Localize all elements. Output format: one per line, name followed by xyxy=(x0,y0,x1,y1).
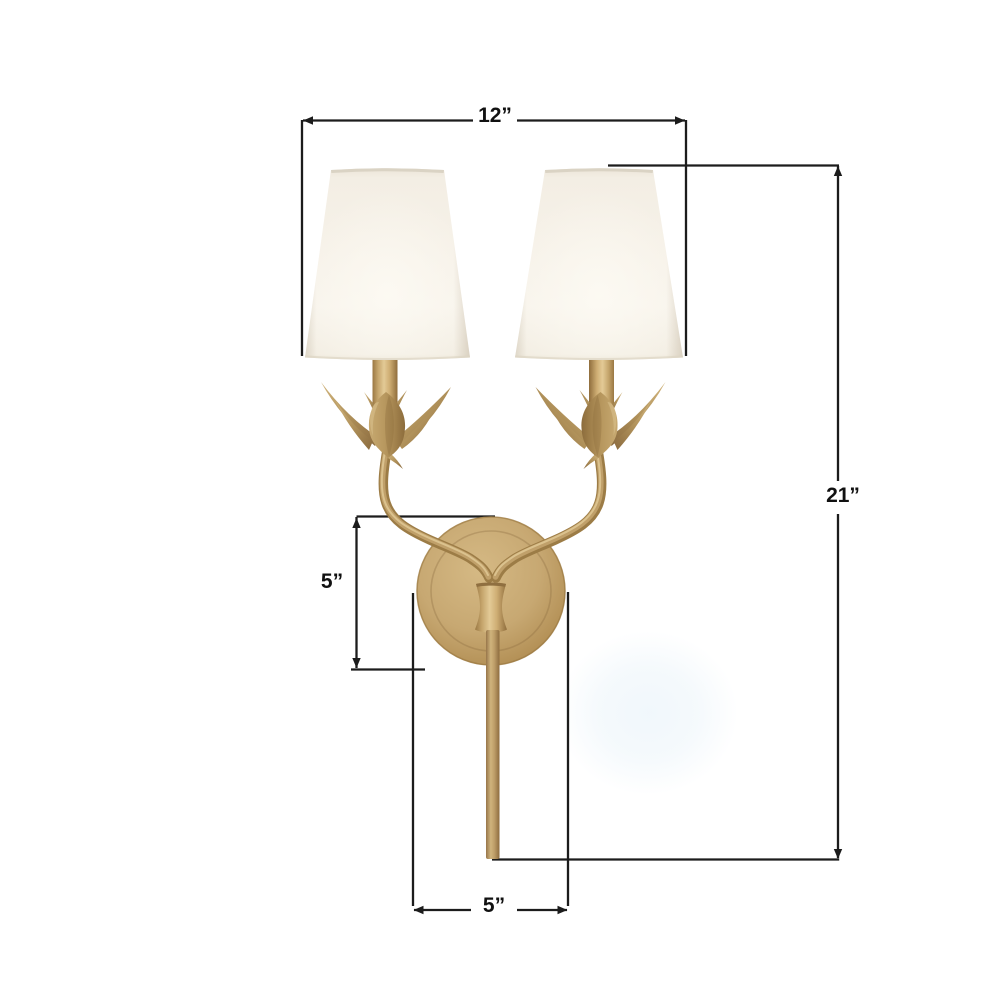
svg-text:5”: 5” xyxy=(321,570,343,593)
svg-text:12”: 12” xyxy=(478,104,512,127)
svg-text:5”: 5” xyxy=(483,894,505,917)
svg-text:21”: 21” xyxy=(826,484,860,507)
